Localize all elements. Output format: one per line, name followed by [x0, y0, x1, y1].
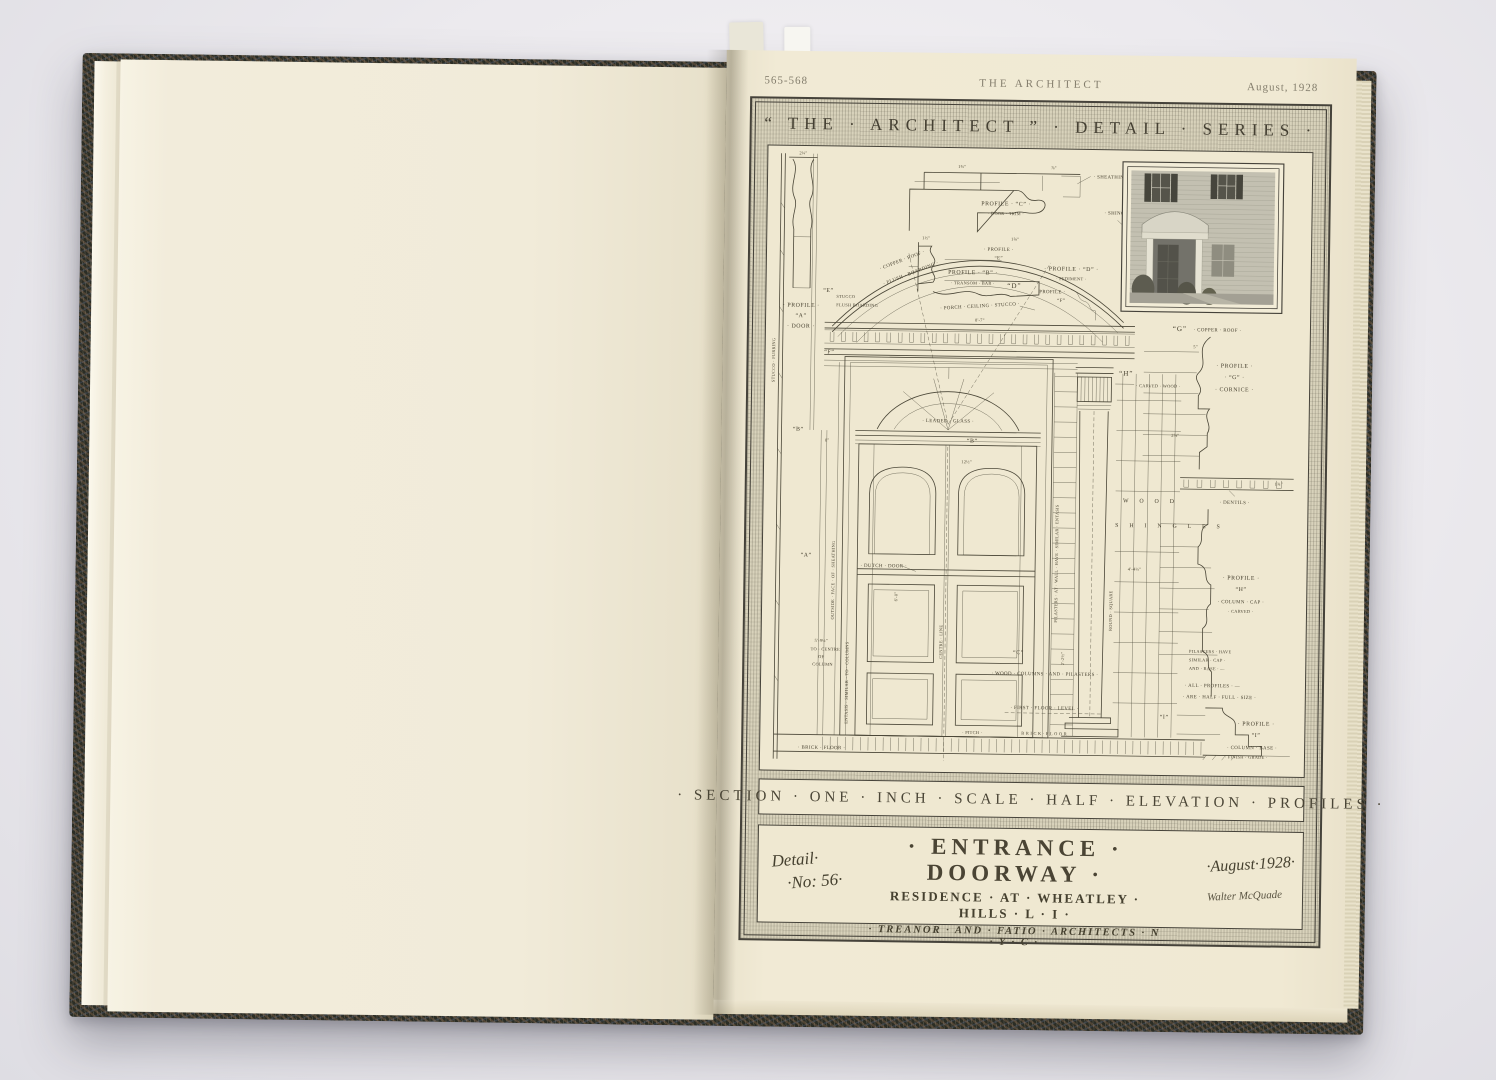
marker-b1: “B” [793, 426, 804, 433]
label-stucco: STUCCO [836, 294, 855, 299]
label-pilasters-2: SIMILAR · CAP · [1189, 657, 1226, 663]
marker-a: “A” [801, 552, 812, 559]
shutter [1236, 175, 1243, 200]
label-profile-e-letter: “E” [994, 255, 1003, 261]
profile-g-shape [1142, 336, 1210, 469]
running-header: 565-568 THE ARCHITECT August, 1928 [764, 74, 1318, 98]
dim-label: 5" [1193, 344, 1198, 349]
label-to-centre: TO · CENTRE [811, 646, 840, 651]
residence-line: RESIDENCE · AT · WHEATLEY · HILLS · L · … [868, 888, 1162, 924]
label-column-base: · COLUMN · BASE · [1227, 746, 1277, 752]
label-profile-e: · PROFILE · [984, 248, 1014, 253]
marker-g: “G” [1173, 325, 1187, 333]
architects-line: · TREANOR · AND · FATIO · ARCHITECTS · N… [867, 924, 1161, 950]
delineator-signature: Walter McQuade [1207, 889, 1282, 904]
dim-label: 8'-7" [975, 318, 985, 323]
issue-script: ·August·1928· [1206, 854, 1295, 877]
dim-label: 5'-9¼" [815, 638, 828, 643]
shutter [1171, 174, 1178, 202]
label-pilasters-wall: PILASTERS · AT · WALL · HAVE · SIMILAR ·… [1053, 504, 1060, 622]
label-column-word: COLUMN [812, 662, 833, 667]
label-profile-d: · PROFILE · “D” · [1044, 265, 1099, 273]
label-copper-roof-g: · COPPER · ROOF · [1194, 328, 1242, 334]
dim-label: 2¼" [799, 150, 807, 155]
label-brick-floor: · BRICK · FLOOR · [798, 746, 845, 752]
issue-date: August, 1928 [1247, 81, 1318, 94]
shutter [1211, 174, 1218, 199]
shutter [1144, 173, 1151, 201]
label-profile-i: · PROFILE · [1238, 721, 1275, 728]
label-carved-wood: · CARVED · WOOD · [1136, 383, 1181, 389]
label-profile-b: PROFILE · “B” · [948, 269, 998, 277]
label-profile-c: PROFILE · “C” · [981, 200, 1031, 208]
label-pitch: · PITCH · [962, 730, 982, 735]
label-column-cap: · COLUMN · CAP · [1218, 600, 1265, 606]
dim-label: 4'-4¼" [1128, 567, 1141, 572]
label-profile-a-letter: “A” [796, 312, 807, 319]
photo-inset [1121, 162, 1284, 314]
label-dentils: · DENTILS · [1219, 501, 1249, 506]
dim-label: ⅞" [1051, 165, 1057, 170]
dim-label: 12½" [961, 459, 972, 464]
label-pilasters-3: AND · BASE · — [1189, 666, 1226, 672]
label-brick-floor-sp: B R I C K · F L O O R [1021, 731, 1067, 737]
title-block: Detail· ·No: 56· · ENTRANCE · DOORWAY · … [757, 825, 1304, 931]
marker-h: “H” [1119, 370, 1133, 378]
label-profile-g-letter: · “G” · [1224, 374, 1244, 381]
plate-title: · ENTRANCE · DOORWAY · [868, 833, 1163, 889]
label-finish-grade: · FINISH · GRADE · [1225, 754, 1268, 760]
architectural-drawing: 2¼" · PROFILE · “A” · DOOR · 1¾" ⅞" PROF… [760, 145, 1313, 777]
label-flush-boarding-small: FLUSH BOARDING [836, 302, 878, 308]
label-round-square: ROUND · SQUARE [1108, 590, 1114, 631]
marker-d: “D” [1007, 282, 1021, 290]
label-cornice: · CORNICE · [1215, 387, 1254, 394]
label-centre-line: CENTRE · LINE [938, 625, 943, 659]
plate-frame: “ THE · ARCHITECT ” · DETAIL · SERIES · [743, 101, 1327, 943]
scale-band: · SECTION · ONE · INCH · SCALE · HALF · … [758, 779, 1304, 823]
open-book: 565-568 THE ARCHITECT August, 1928 “ THE… [65, 29, 1399, 1047]
marker-b2: “B” [967, 437, 978, 444]
label-pediment: · PEDIMENT · [1056, 276, 1086, 281]
detail-no: ·No: 56· [786, 869, 843, 896]
label-profile-a: · PROFILE · [783, 303, 820, 310]
drawing-area: 2¼" · PROFILE · “A” · DOOR · 1¾" ⅞" PROF… [759, 144, 1314, 778]
label-porch-ceiling-stucco: · PORCH · CEILING · STUCCO · [940, 302, 1020, 311]
label-wood: W O O D [1123, 498, 1179, 505]
detail-number: Detail· ·No: 56· [771, 846, 843, 897]
label-profile-a-door: · DOOR · [787, 323, 815, 329]
right-page: 565-568 THE ARCHITECT August, 1928 “ THE… [714, 50, 1357, 1009]
label-leaded-glass: · LEADED · GLASS · [922, 419, 974, 425]
label-profile-f: PROFILE · [1039, 290, 1065, 295]
label-stucco-furring: STUCCO · FURRING [771, 338, 777, 382]
profile-f-shape [1071, 290, 1096, 321]
label-pilasters-1: PILASTERS · HAVE [1189, 649, 1231, 655]
label-outside-face: OUTSIDE · FACE · OF · SHEATHING [830, 540, 836, 619]
label-profile-i-letter: “I” [1252, 732, 1261, 739]
dim-label: 6'-0" [893, 592, 898, 602]
label-first-floor: · FIRST · FLOOR · LEVEL · [1010, 706, 1078, 712]
marker-e: “E” [823, 287, 834, 294]
journal-title: THE ARCHITECT [764, 74, 1318, 94]
marker-i: “I” [1160, 714, 1169, 721]
label-door-trim: · DOOR · TRIM · [988, 211, 1024, 217]
detail-plate: “ THE · ARCHITECT ” · DETAIL · SERIES · [738, 96, 1332, 948]
dim-label: 1¾" [1275, 482, 1283, 487]
dim-label: 1¾" [958, 164, 966, 169]
label-profile-g: · PROFILE · [1216, 363, 1253, 370]
label-dutch-door: · DUTCH · DOOR · [860, 564, 907, 570]
wood-column [1061, 367, 1123, 737]
marker-c: “C” [1013, 649, 1024, 656]
dim-label: 1⅝" [1011, 237, 1019, 242]
doorway-elevation [839, 357, 1053, 763]
label-half-size-1: · ALL · PROFILES · — [1185, 684, 1240, 690]
entablature [824, 322, 1135, 370]
label-profile-h: · PROFILE · [1223, 575, 1260, 582]
dim-label: 1½" [922, 235, 930, 240]
wall-section-lines [773, 153, 842, 759]
dim-label: 2'-2½" [1060, 652, 1065, 665]
label-half-size-2: · ARE · HALF · FULL · SIZE · [1183, 695, 1256, 701]
label-profile-f-letter: “F” [1057, 298, 1065, 304]
label-wood-columns: · WOOD · COLUMNS · AND · PILASTERS · [992, 672, 1099, 678]
dimension-grid [1112, 374, 1181, 738]
dim-label: 2⅝" [1171, 433, 1179, 438]
label-transom-bar: · TRANSOM · BAR · [951, 280, 995, 286]
left-page-blank [107, 59, 726, 1019]
porch-column [1195, 239, 1202, 297]
label-carved: · CARVED · [1228, 609, 1253, 614]
label-entasis-columns: ENTASIS · SIMILAR · TO · COLUMNS [843, 641, 849, 724]
title-block-center: · ENTRANCE · DOORWAY · RESIDENCE · AT · … [867, 833, 1163, 950]
label-of: OF [818, 654, 824, 659]
dim-label: 8" [825, 437, 830, 442]
label-profile-h-letter: “H” [1235, 586, 1246, 593]
